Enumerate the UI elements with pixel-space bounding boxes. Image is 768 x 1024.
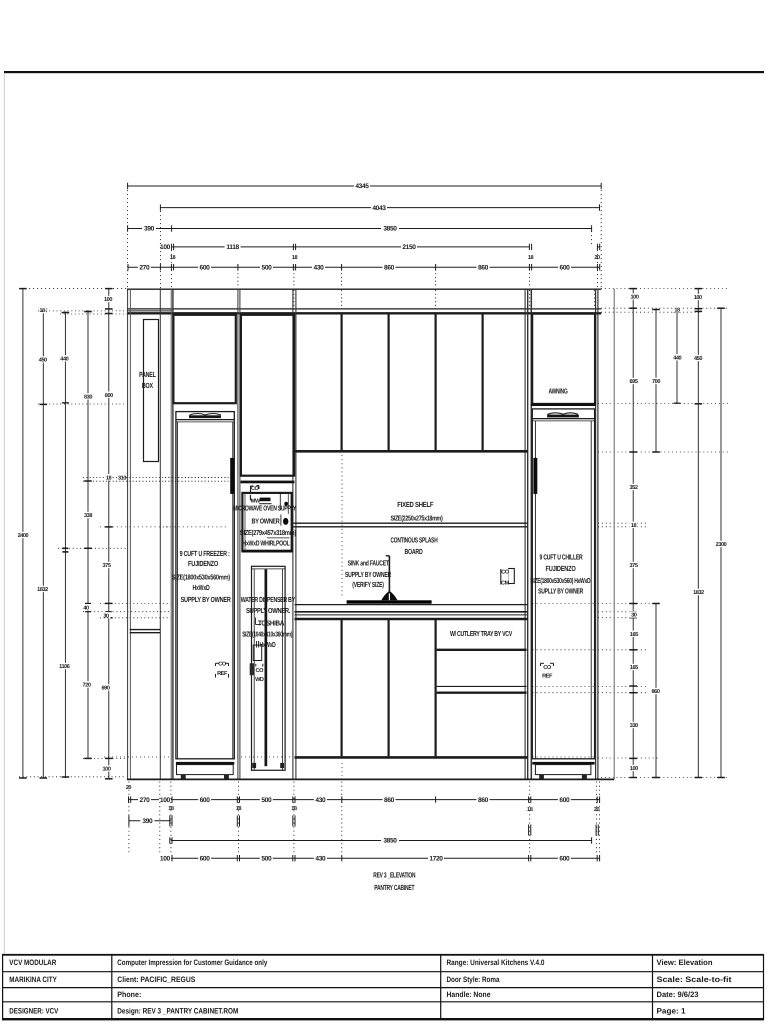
svg-text:2150: 2150 [402,244,416,251]
svg-text:450: 450 [39,358,47,364]
svg-text:PANTRY CABINET: PANTRY CABINET [374,883,415,892]
svg-text:330: 330 [630,723,638,729]
svg-text:9 CUFT U FREEZER :: 9 CUFT U FREEZER : [180,549,230,558]
svg-text:100: 100 [103,767,111,773]
svg-text:18: 18 [170,255,176,261]
svg-text:DESIGNER: VCV: DESIGNER: VCV [9,1006,59,1015]
svg-text:100: 100 [160,855,171,862]
svg-text:390: 390 [142,818,153,825]
svg-text:CO: CO [543,665,552,671]
svg-text:PANEL: PANEL [139,370,156,379]
svg-text:4345: 4345 [355,183,369,190]
svg-text:450: 450 [694,356,702,362]
svg-text:BY OWNER: BY OWNER [252,516,281,525]
svg-text:AWNING: AWNING [549,387,569,396]
svg-text:CM: CM [501,581,510,587]
svg-text:4043: 4043 [372,205,386,212]
svg-text:Handle: None: Handle: None [447,990,492,999]
svg-text:390: 390 [144,226,155,233]
svg-text:600: 600 [200,264,211,271]
svg-text:860: 860 [652,689,660,695]
svg-text:SIZE(1800x530x560) HxWxD: SIZE(1800x530x560) HxWxD [530,576,590,585]
svg-text:CO: CO [501,570,510,576]
svg-text:313: 313 [118,476,126,482]
svg-text:9 CUFT U CHILLER: 9 CUFT U CHILLER [540,553,584,562]
svg-text:690: 690 [102,686,110,692]
svg-text:860: 860 [384,797,395,804]
svg-text:270: 270 [139,264,150,271]
svg-text:352: 352 [630,485,638,491]
svg-text:Page: 1: Page: 1 [657,1006,687,1015]
svg-text:695: 695 [630,379,638,385]
svg-text:SIZE(2250x275x18mm): SIZE(2250x275x18mm) [391,513,444,522]
svg-text:500: 500 [262,264,273,271]
svg-text:600: 600 [200,855,211,862]
svg-text:VCV MODULAR: VCV MODULAR [9,958,56,967]
svg-text:18: 18 [106,476,112,482]
svg-text:BOX: BOX [142,381,153,390]
svg-text:FUJIDENZO: FUJIDENZO [188,559,218,568]
svg-text:860: 860 [478,797,489,804]
svg-text:SUPPLY BY OWNER: SUPPLY BY OWNER [345,570,392,579]
svg-text:Door Style: Roma: Door Style: Roma [447,975,501,984]
svg-text:20: 20 [594,255,600,261]
svg-text:MICROWAVE OVEN SUPPLY: MICROWAVE OVEN SUPPLY [233,503,296,512]
svg-text:Design: REV 3 _PANTRY CABINET.: Design: REV 3 _PANTRY CABINET.ROM [117,1006,238,1015]
svg-text:REF: REF [542,673,553,679]
svg-text:SIZE(1800x530x560mm): SIZE(1800x530x560mm) [172,573,231,582]
svg-text:1720: 1720 [429,855,443,862]
svg-text:18: 18 [674,308,680,314]
svg-text:1832: 1832 [693,590,704,596]
svg-text:CONTINOUS SPLASH: CONTINOUS SPLASH [391,536,438,545]
svg-text:100: 100 [694,295,702,301]
svg-text:Range: Universal Kitchens V.4.: Range: Universal Kitchens V.4.0 [447,958,546,967]
svg-text:440: 440 [673,355,681,361]
svg-text:CO: CO [218,662,227,668]
svg-text:430: 430 [315,855,326,862]
svg-text:SIZE(279x457x318mm): SIZE(279x457x318mm) [240,528,297,537]
svg-text:SINK and FAUCET: SINK and FAUCET [348,559,390,568]
svg-text:30: 30 [103,614,109,620]
svg-text:WD: WD [255,677,264,683]
svg-text:600: 600 [559,797,570,804]
svg-text:Phone:: Phone: [117,990,141,999]
svg-text:100: 100 [630,766,638,772]
svg-text:1832: 1832 [37,587,48,593]
svg-text:View: Elevation: View: Elevation [657,958,713,967]
svg-text:REF: REF [217,671,228,677]
svg-text:HxWxD WHIRLPOOL: HxWxD WHIRLPOOL [243,539,291,548]
svg-text:100: 100 [631,295,639,301]
svg-text:1106: 1106 [59,664,70,670]
svg-text:500: 500 [261,797,272,804]
svg-text:2400: 2400 [18,533,29,539]
svg-text:165: 165 [630,665,638,671]
svg-text:500: 500 [261,855,272,862]
svg-text:830: 830 [84,395,92,401]
svg-text:40: 40 [83,606,89,612]
svg-text:100: 100 [160,244,171,251]
svg-text:SIZE(1040x310x360mm): SIZE(1040x310x360mm) [242,630,293,639]
svg-text:860: 860 [478,264,489,271]
svg-text:Scale: Scale-to-fit: Scale: Scale-to-fit [657,975,732,984]
svg-text:338: 338 [84,513,92,519]
svg-text:430: 430 [314,264,325,271]
svg-text:1118: 1118 [226,244,239,251]
svg-text:440: 440 [60,357,68,363]
svg-text:SUPPLY BY OWNER: SUPPLY BY OWNER [181,595,232,604]
svg-text:18: 18 [528,255,534,261]
svg-text:W/ CUTLERY TRAY BY VCV: W/ CUTLERY TRAY BY VCV [450,629,512,638]
svg-text:600: 600 [200,797,211,804]
svg-text:REV 3 _ELEVATION: REV 3 _ELEVATION [373,871,415,880]
svg-text:18: 18 [631,523,637,529]
svg-text:SUPPLY OWNER.: SUPPLY OWNER. [246,606,290,615]
svg-text:375: 375 [103,563,111,569]
svg-text:600: 600 [559,855,570,862]
svg-text:270: 270 [140,797,151,804]
svg-text:800: 800 [105,393,113,399]
svg-text:30: 30 [631,613,637,619]
svg-text:HxWxD: HxWxD [193,583,211,592]
svg-text:Client: PACIFIC_REGUS: Client: PACIFIC_REGUS [117,975,195,984]
svg-text:700: 700 [652,379,660,385]
svg-text:TOSHIBA: TOSHIBA [258,618,284,627]
svg-text:430: 430 [315,797,326,804]
svg-text:BOARD: BOARD [405,547,424,556]
svg-text:100: 100 [104,297,112,303]
svg-text:(VERIFY SIZE): (VERIFY SIZE) [352,580,384,589]
svg-text:720: 720 [83,683,91,689]
svg-text:CO: CO [256,668,265,674]
svg-text:Date: 9/6/23: Date: 9/6/23 [657,990,700,999]
svg-text:FUJIDENZO: FUJIDENZO [546,564,576,573]
svg-text:600: 600 [560,264,571,271]
svg-text:18: 18 [292,255,298,261]
svg-text:375: 375 [630,563,638,569]
svg-text:100: 100 [160,797,171,804]
svg-text:Computer Impression for Custom: Computer Impression for Customer Guidanc… [117,958,268,967]
svg-text:FIXED SHELF: FIXED SHELF [397,500,434,509]
svg-text:CO: CO [251,486,260,492]
svg-text:165: 165 [630,632,638,638]
svg-text:MARIKINA CITY: MARIKINA CITY [9,975,57,984]
svg-text:2300: 2300 [716,542,727,548]
svg-text:3850: 3850 [383,226,397,233]
svg-text:SUPLLY BY OWNER: SUPLLY BY OWNER [538,587,584,596]
svg-text:3850: 3850 [383,838,397,845]
svg-text:860: 860 [384,264,395,271]
svg-text:WATER DISPENSER BY: WATER DISPENSER BY [241,595,295,604]
